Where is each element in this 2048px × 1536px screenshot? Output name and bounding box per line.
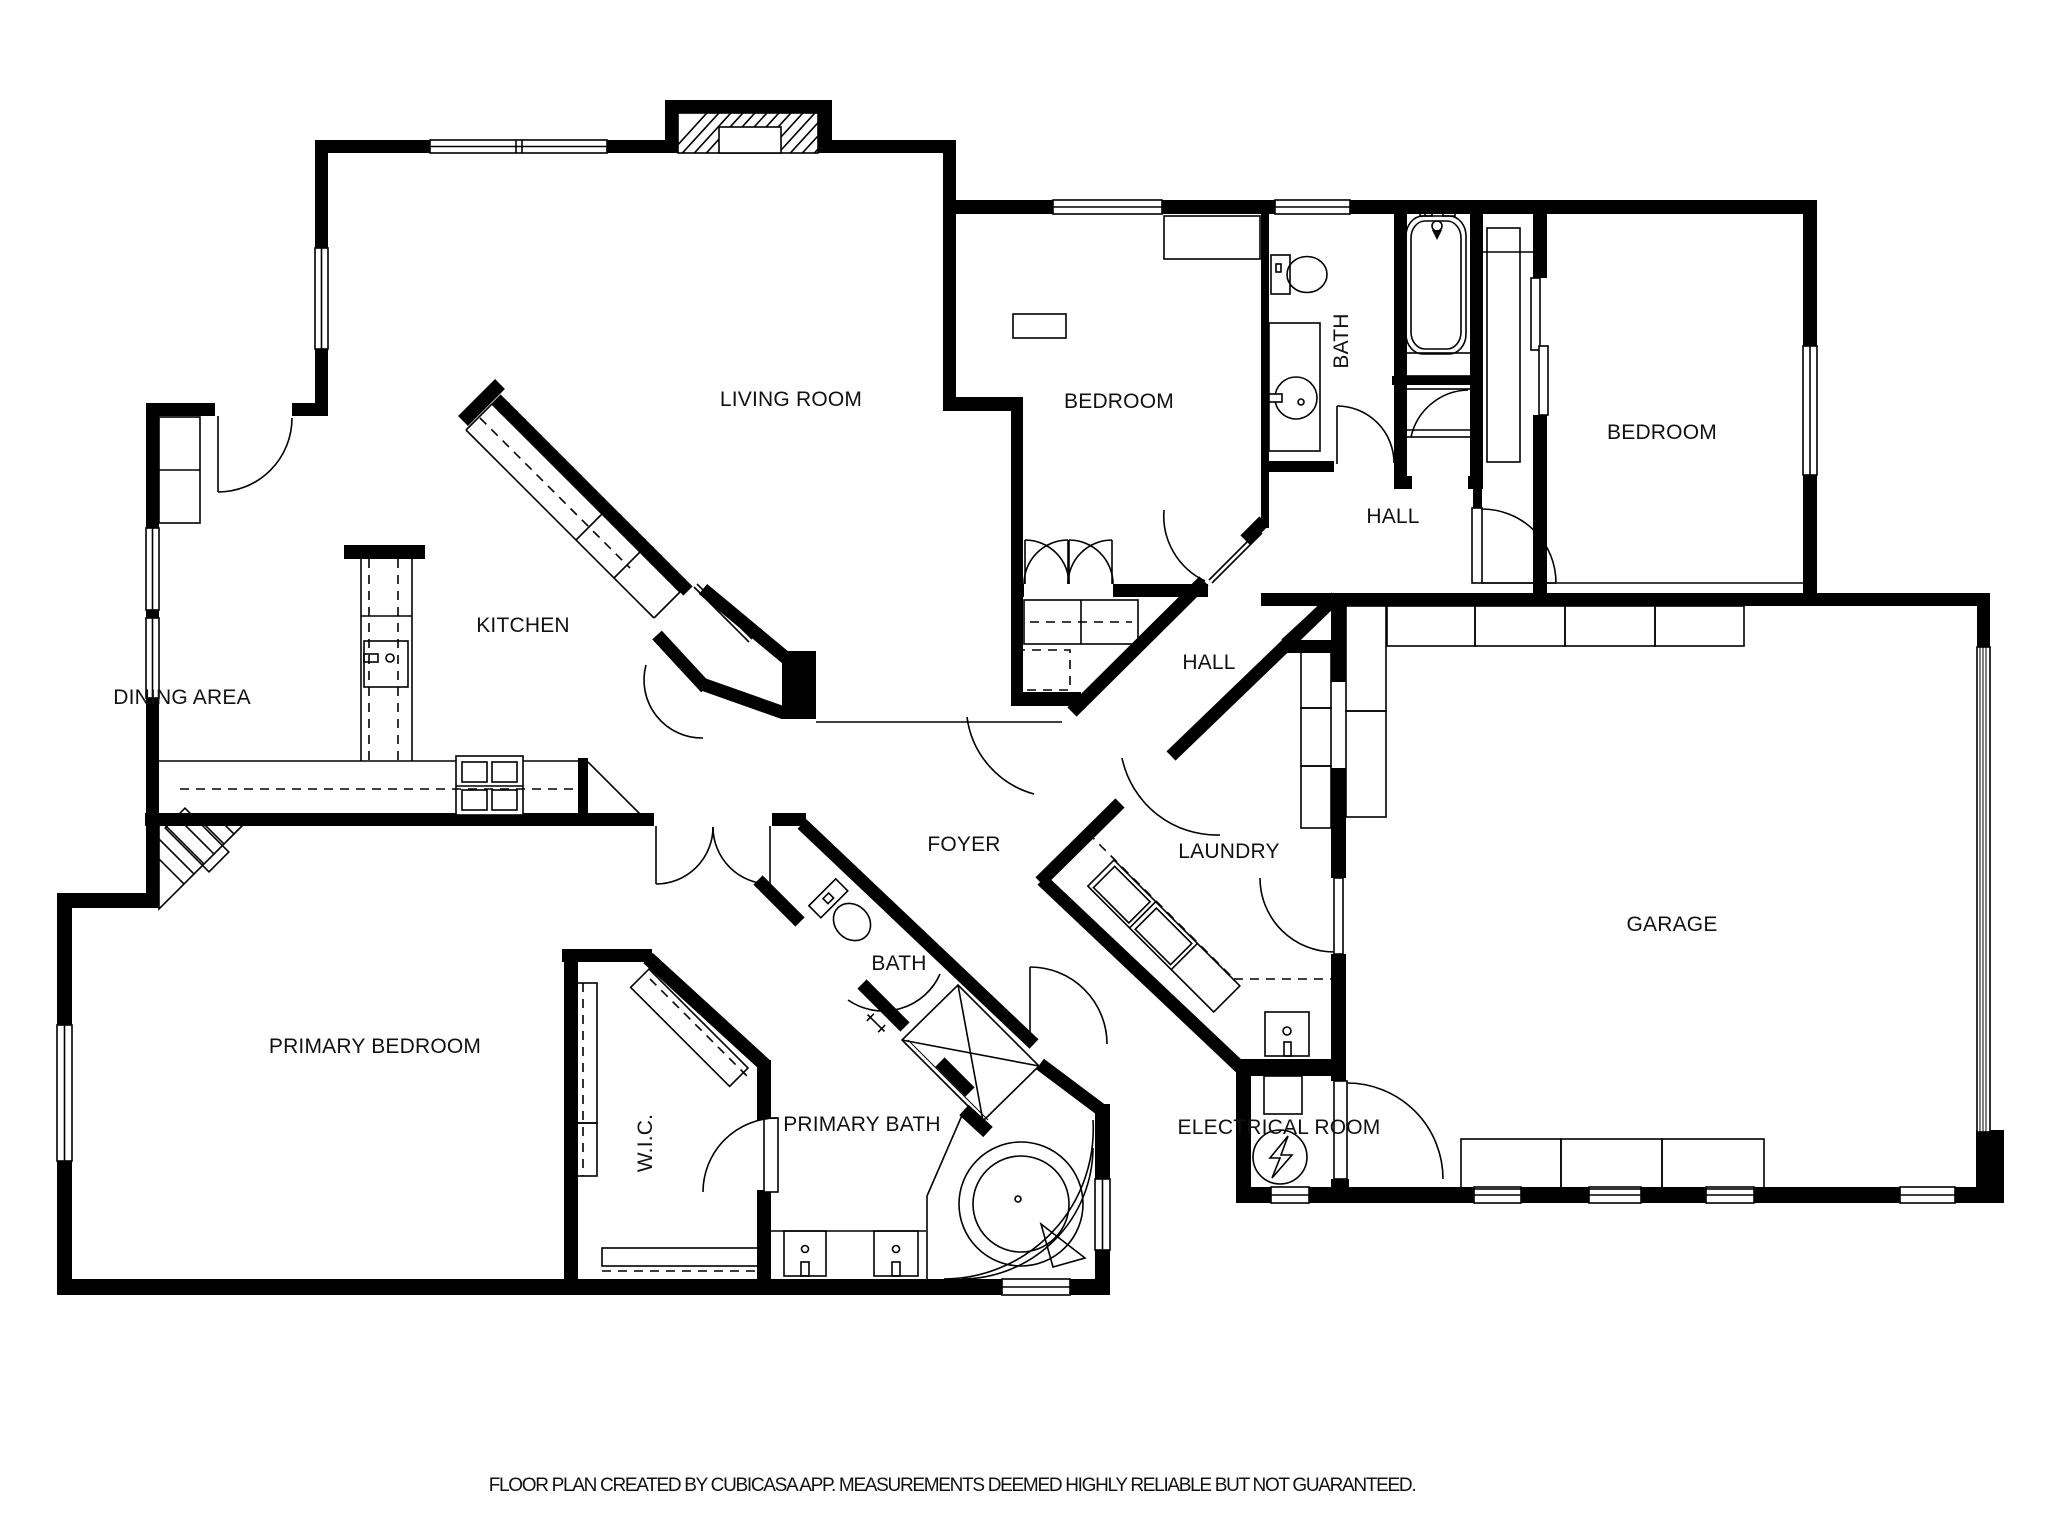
- svg-text:BATH: BATH: [1330, 313, 1353, 368]
- svg-text:HALL: HALL: [1366, 505, 1419, 528]
- svg-text:LIVING ROOM: LIVING ROOM: [720, 388, 862, 411]
- svg-text:BEDROOM: BEDROOM: [1064, 390, 1174, 413]
- svg-text:ELECTRICAL ROOM: ELECTRICAL ROOM: [1178, 1116, 1381, 1139]
- svg-text:FLOOR PLAN CREATED BY CUBICASA: FLOOR PLAN CREATED BY CUBICASA APP. MEAS…: [489, 1475, 1416, 1496]
- svg-text:KITCHEN: KITCHEN: [476, 614, 570, 637]
- svg-text:DINING AREA: DINING AREA: [113, 686, 251, 709]
- svg-text:BEDROOM: BEDROOM: [1607, 421, 1717, 444]
- svg-text:BATH: BATH: [871, 952, 926, 975]
- svg-text:FOYER: FOYER: [927, 833, 1000, 856]
- svg-text:PRIMARY BATH: PRIMARY BATH: [783, 1113, 941, 1136]
- svg-text:W.I.C.: W.I.C.: [634, 1114, 657, 1172]
- svg-text:HALL: HALL: [1182, 651, 1235, 674]
- svg-text:GARAGE: GARAGE: [1626, 913, 1717, 936]
- svg-text:LAUNDRY: LAUNDRY: [1178, 840, 1279, 863]
- svg-text:PRIMARY BEDROOM: PRIMARY BEDROOM: [269, 1035, 481, 1058]
